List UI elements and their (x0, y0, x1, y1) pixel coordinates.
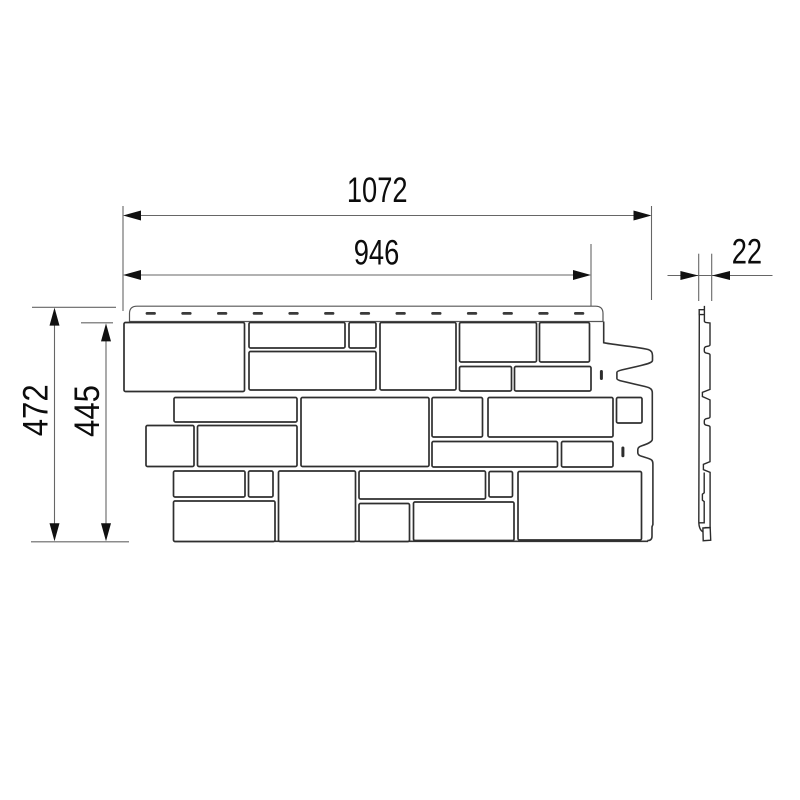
svg-text:946: 946 (354, 233, 400, 272)
svg-text:1072: 1072 (347, 171, 408, 210)
svg-text:22: 22 (732, 232, 762, 271)
svg-text:445: 445 (68, 385, 107, 437)
svg-text:472: 472 (17, 384, 56, 436)
